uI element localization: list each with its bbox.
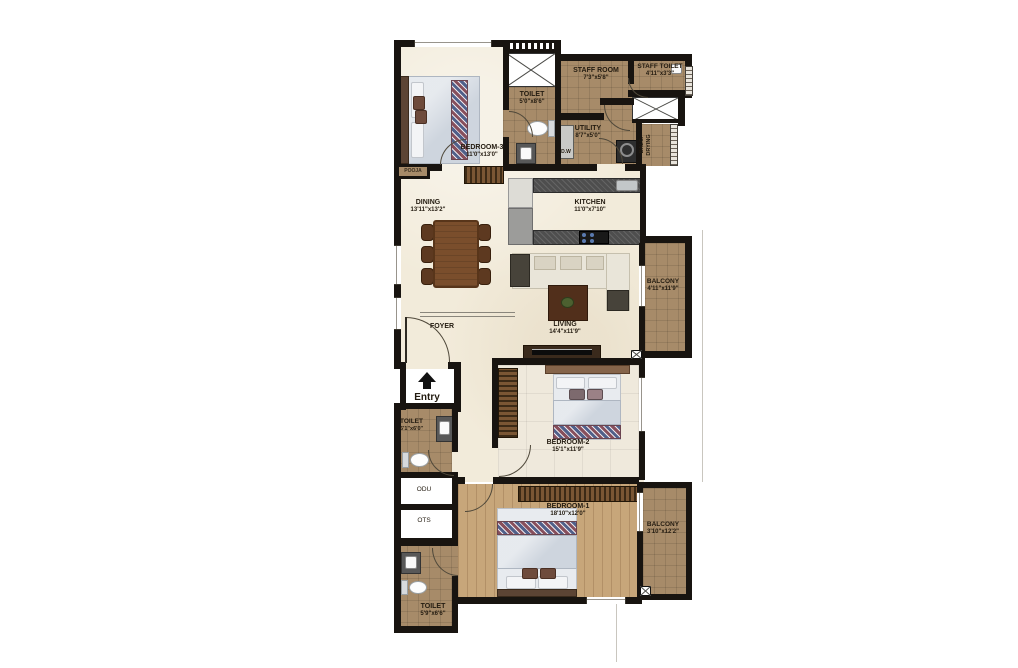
cushion [413, 96, 425, 110]
hob-burner [590, 233, 594, 237]
wardrobe-bedroom1 [518, 486, 638, 502]
entry-arrow-stem [423, 382, 431, 389]
sofa-throw [607, 290, 629, 311]
dishwasher-label: D.W [557, 149, 575, 156]
toilet-bottom-label: TOILET 5'9"x6'6" [406, 602, 460, 619]
kitchen-label: KITCHEN 11'0"x7'10" [562, 198, 618, 215]
washing-machine-door [620, 143, 634, 157]
top-margin [556, 40, 692, 54]
cushion [569, 389, 585, 400]
toilet-top-label: TOILET 5'0"x8'6" [506, 90, 558, 107]
dining-table [433, 220, 479, 288]
bedroom1-label: BEDROOM-1 18'10"x12'0" [534, 502, 602, 519]
toilet-tank [401, 580, 408, 595]
cushion [540, 568, 556, 579]
wall [637, 482, 692, 488]
wall [685, 236, 692, 358]
wall [394, 626, 458, 633]
tall-unit [508, 178, 533, 208]
entry-arrow-icon [418, 372, 436, 382]
wall [600, 98, 634, 105]
wall [503, 164, 597, 171]
floorplan: BEDROOM-3 11'0"x13'0" TOILET 5'0"x8'6" S… [394, 40, 706, 640]
dining-chair [478, 224, 491, 241]
wall [556, 113, 604, 120]
drafting-line [702, 230, 703, 482]
drain-x-icon [631, 350, 642, 359]
toilet-bowl [409, 581, 427, 594]
wash-basin [439, 421, 450, 435]
staff-room-label: STAFF ROOM 7'3"x5'8" [566, 66, 626, 83]
wall [686, 482, 692, 600]
wall [394, 504, 458, 510]
wall [452, 408, 458, 452]
tv-screen [532, 349, 592, 355]
wall [493, 477, 639, 484]
kitchen-sink [616, 180, 638, 191]
hob-burner [590, 239, 594, 243]
hob-burner [582, 233, 586, 237]
cushion [415, 110, 427, 124]
wall [556, 54, 692, 61]
cushion [587, 389, 603, 400]
odu-label: ODU [402, 486, 446, 494]
door-leaf-entry [405, 317, 407, 363]
balcony-living-floor [645, 243, 685, 351]
fridge [508, 208, 533, 245]
wall [452, 482, 458, 545]
utility-label: UTILITY 8'7"x5'0" [562, 124, 614, 141]
wall [640, 351, 692, 358]
balcony-living-label: BALCONY 4'11"x11'9" [638, 278, 688, 294]
cushion [522, 568, 538, 579]
window [394, 245, 401, 285]
window [394, 297, 401, 330]
wash-basin [520, 147, 532, 160]
toilet-bowl [410, 453, 429, 467]
shaft2-x-icon [632, 97, 680, 121]
wall [452, 477, 465, 484]
drafting-line [616, 604, 617, 662]
window [586, 597, 626, 604]
wardrobe-bedroom2 [498, 368, 518, 438]
sofa-throw [510, 254, 530, 287]
blanket-bedroom1 [497, 535, 577, 569]
headboard-bedroom3 [400, 76, 409, 164]
wall [640, 168, 646, 238]
wall [492, 358, 639, 365]
staff-toilet-label: STAFF TOILET 4'11"x3'3" [636, 63, 684, 79]
balc-drying-label: BALC. DRYING [639, 123, 669, 167]
bed-runner [553, 425, 621, 439]
dining-label: DINING 13'11"x13'2" [400, 198, 456, 215]
blanket-bedroom2 [553, 400, 621, 425]
bedroom2-label: BEDROOM-2 15'1"x11'9" [536, 438, 600, 455]
window [639, 377, 645, 432]
pillow [556, 377, 585, 389]
pillow [588, 377, 617, 389]
wall [394, 538, 458, 546]
drying-grill [670, 124, 678, 166]
bed-runner [497, 521, 577, 535]
balcony-bedroom1-label: BALCONY 3'10"x12'2" [638, 521, 688, 537]
coffee-table-decor [561, 297, 574, 308]
bedroom3-label: BEDROOM-3 11'0"x13'0" [450, 143, 514, 160]
toilet-tank [402, 452, 409, 468]
wall [492, 358, 498, 448]
wall [430, 164, 442, 171]
staff-toilet-grill [685, 66, 693, 96]
balcony-bedroom1-floor [643, 488, 686, 594]
shaft-x-icon [506, 53, 556, 87]
drain-x-icon [640, 586, 651, 596]
toilet-tank [548, 120, 555, 137]
pillow [411, 122, 424, 158]
wardrobe-bedroom3 [464, 166, 504, 184]
headboard-bedroom1 [497, 589, 577, 597]
window [414, 40, 492, 47]
dining-chair [478, 246, 491, 263]
pooja-label: POOJA [398, 168, 428, 175]
dining-chair [478, 268, 491, 285]
headboard-bedroom2 [545, 365, 630, 374]
ots-label: OTS [402, 517, 446, 525]
sofa-cushion [534, 256, 556, 270]
wash-basin [405, 556, 417, 569]
foyer-label: FOYER [418, 322, 466, 331]
toilet-mid-label: TOILET 6'1"x6'0" [400, 418, 438, 434]
vent-squares-icon [510, 43, 554, 49]
living-label: LIVING 14'4"x11'9" [536, 320, 594, 337]
sofa-cushion [560, 256, 582, 270]
wall [394, 403, 401, 632]
wall [394, 362, 406, 369]
sofa-cushion [586, 256, 604, 270]
hob-burner [582, 239, 586, 243]
foyer-console [420, 312, 515, 317]
entry-label: Entry [400, 391, 454, 404]
